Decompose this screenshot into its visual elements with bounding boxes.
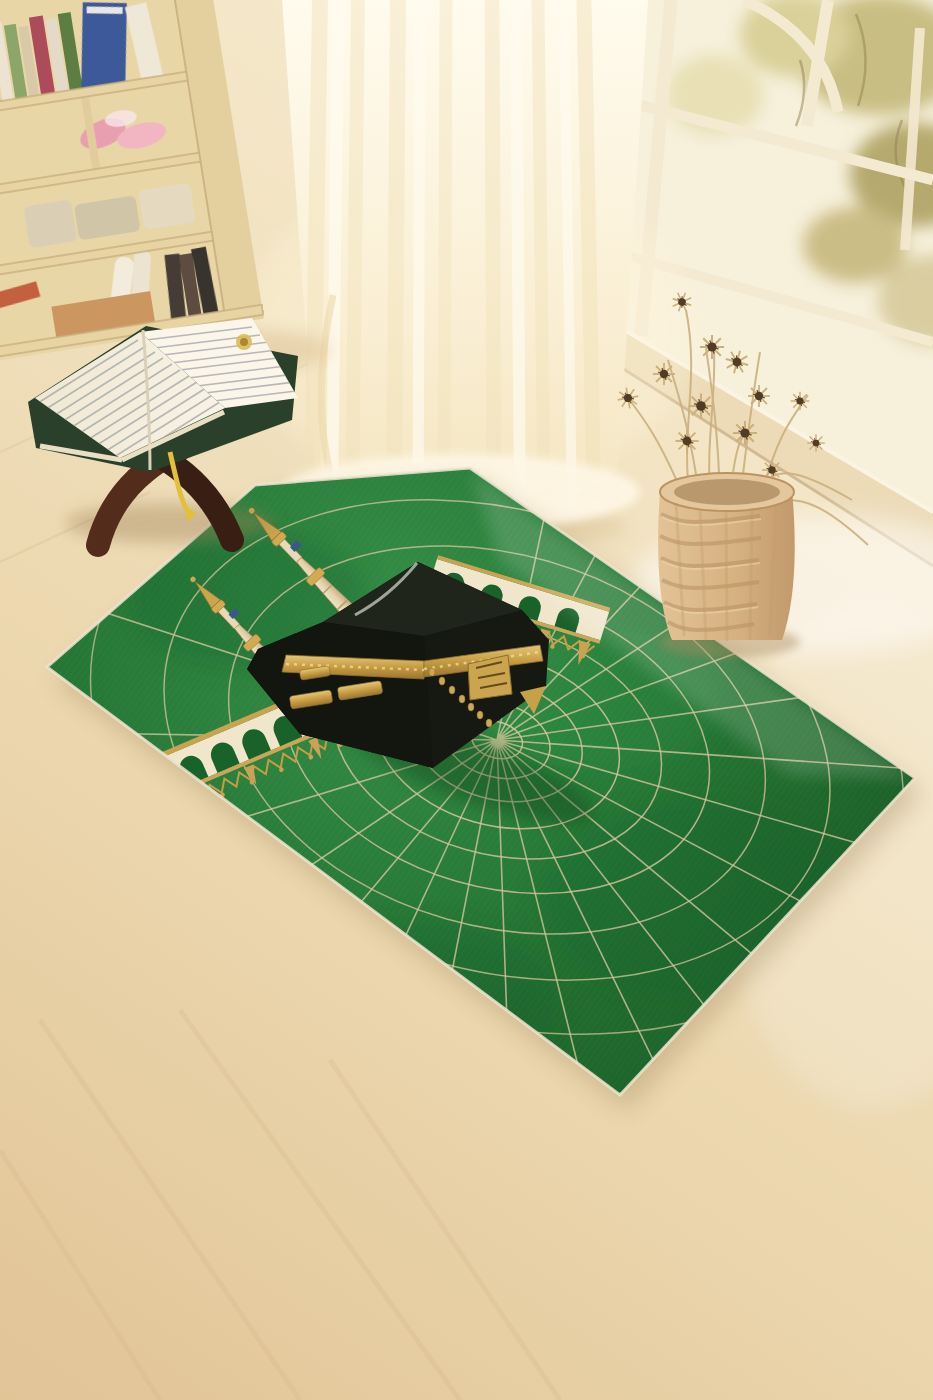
scene: [0, 0, 933, 1400]
photo-stage: [0, 0, 933, 1400]
warm-light-cast: [0, 0, 933, 1400]
